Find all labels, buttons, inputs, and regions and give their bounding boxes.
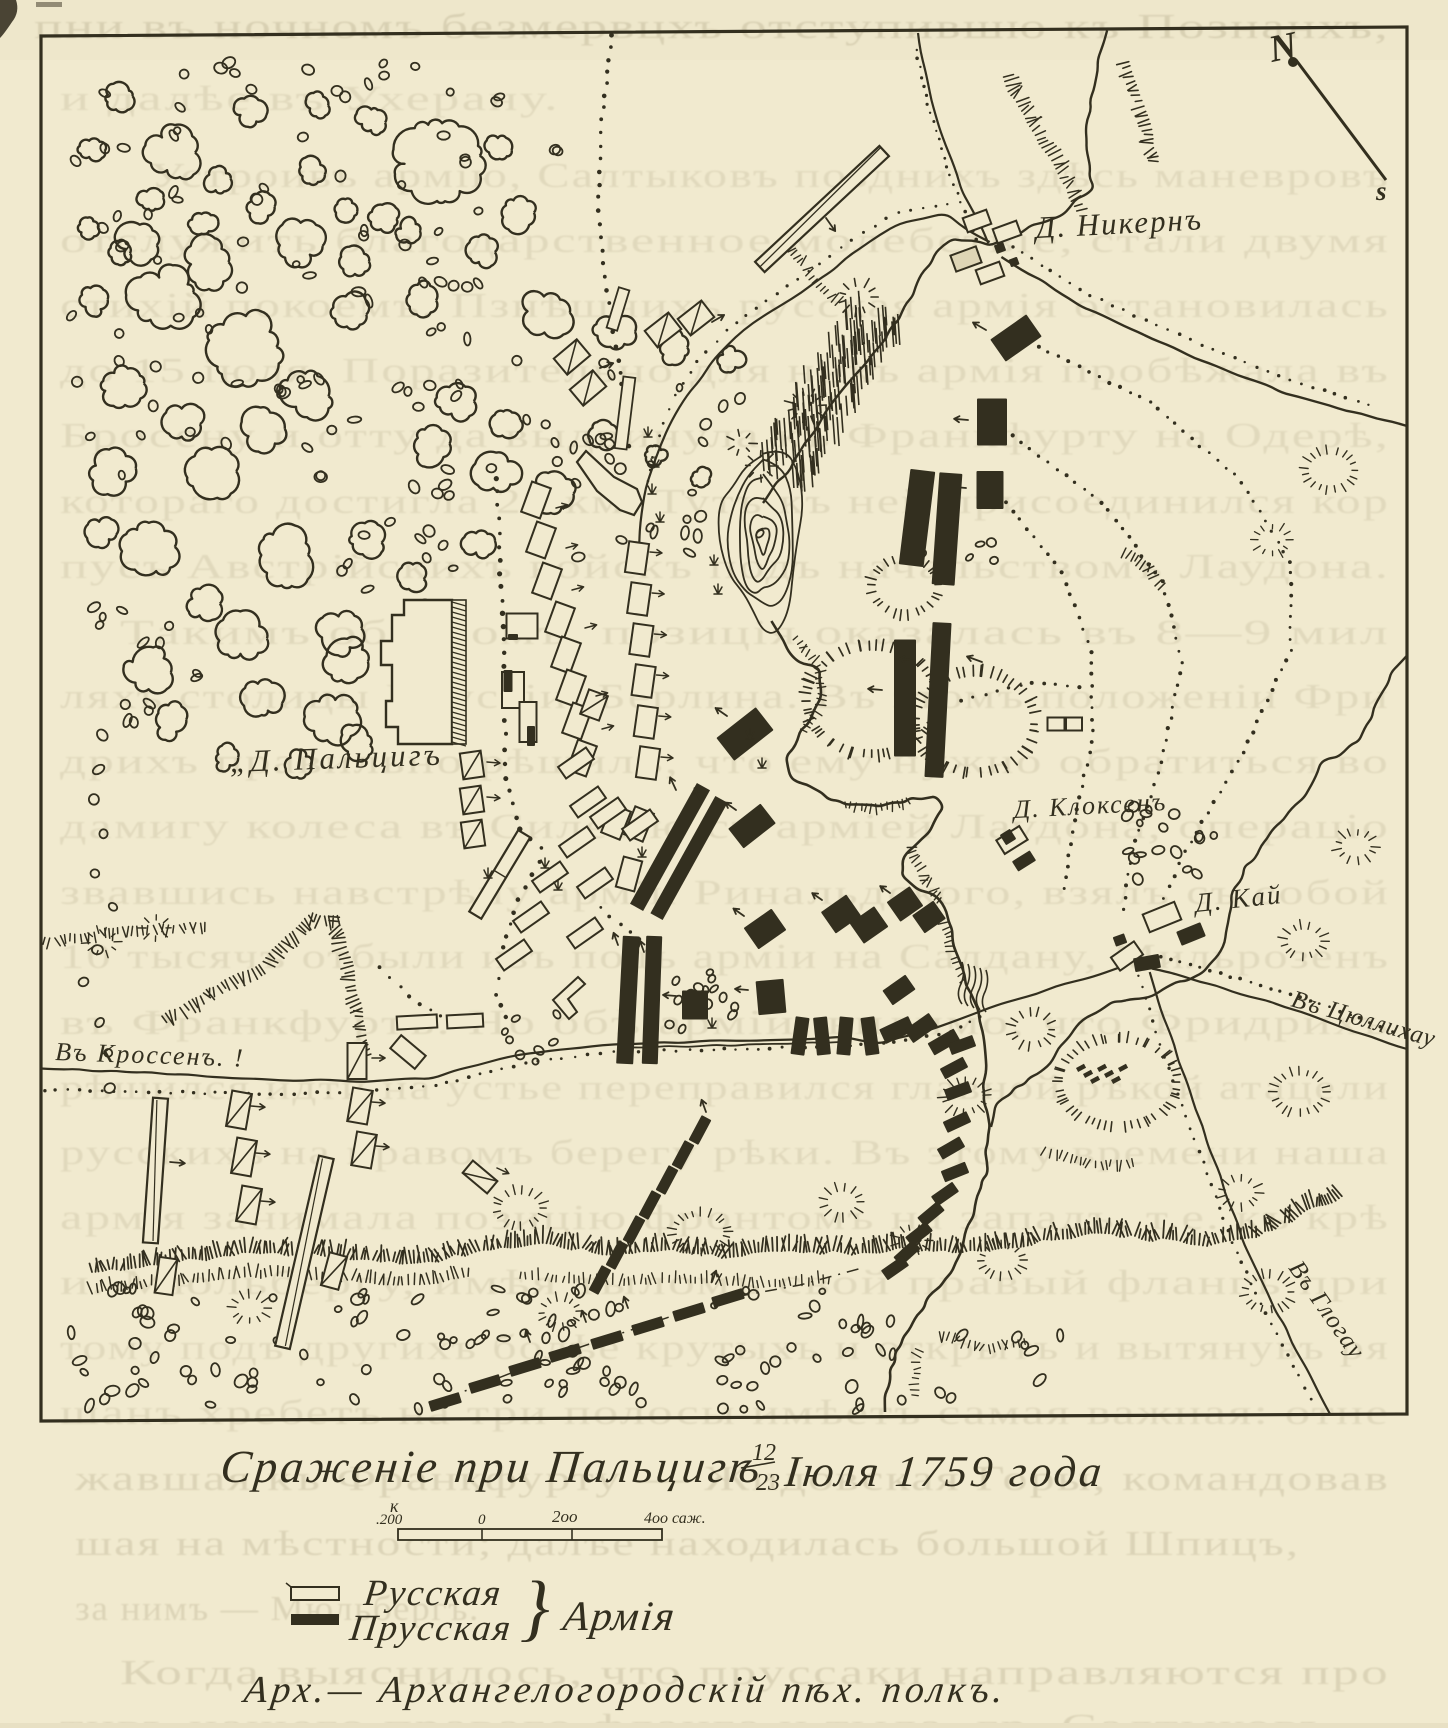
svg-text:Прусская: Прусская bbox=[347, 1608, 515, 1649]
svg-text:пни въ ночномъ безмервцхъ отст: пни въ ночномъ безмервцхъ отступившю къ … bbox=[34, 7, 1390, 46]
svg-text:Іюля 1759 года: Іюля 1759 года bbox=[782, 1447, 1107, 1496]
svg-text:Арх.— Архангелогородскій пѣх.: Арх.— Архангелогородскій пѣх. полкъ. bbox=[239, 1669, 1009, 1711]
svg-text:Такимъ образомъ, позиція оказа: Такимъ образомъ, позиція оказалась въ 8—… bbox=[120, 613, 1390, 652]
svg-text:10 тысячъ отбыли изъ подъ армі: 10 тысячъ отбыли изъ подъ арміи на Салда… bbox=[60, 937, 1390, 976]
svg-text:дамигу колеса въ Силезію съ ар: дамигу колеса въ Силезію съ арміей Лаудо… bbox=[60, 807, 1390, 846]
svg-text:въ Франкфуртъ. Но обѣ арміи, в: въ Франкфуртъ. Но обѣ арміи, видимо, что… bbox=[60, 1003, 1390, 1042]
svg-text:„Д. Пальцигъ: „Д. Пальцигъ bbox=[229, 737, 443, 779]
svg-text:23: 23 bbox=[756, 1470, 780, 1496]
svg-text:Армія: Армія bbox=[558, 1593, 679, 1640]
svg-text:2оо: 2оо bbox=[552, 1507, 578, 1526]
svg-text:.200: .200 bbox=[376, 1512, 403, 1528]
svg-text:}: } bbox=[520, 1567, 550, 1649]
svg-text:0: 0 bbox=[478, 1512, 486, 1528]
svg-text:Бросену и отту да выдвинула къ: Бросену и отту да выдвинула къ Франкфурт… bbox=[60, 416, 1390, 455]
svg-text:Сраженіе при Пальцигѣ: Сраженіе при Пальцигѣ bbox=[218, 1441, 765, 1492]
svg-text:рѣшился идти на устье переправ: рѣшился идти на устье переправился главн… bbox=[60, 1068, 1390, 1107]
svg-text:котораго достигла 20 км. Тутъ: котораго достигла 20 км. Тутъ къ ней при… bbox=[60, 482, 1390, 521]
svg-text:стихій покоемъ. Пзнѣшнихъ русс: стихій покоемъ. Пзнѣшнихъ русская армія … bbox=[60, 286, 1390, 325]
svg-text:4оо саж.: 4оо саж. bbox=[644, 1510, 706, 1527]
svg-text:тому подъ другихъ болѣе крутых: тому подъ другихъ болѣе крутыхъ и открыт… bbox=[60, 1328, 1390, 1367]
svg-text:s: s bbox=[1375, 176, 1387, 206]
svg-text:шая на мѣстности; далѣе находи: шая на мѣстности; далѣе находилась больш… bbox=[75, 1524, 1300, 1563]
svg-text:звавшись навстрѣчу арміи Ринал: звавшись навстрѣчу арміи Ринальдского, в… bbox=[60, 873, 1390, 912]
